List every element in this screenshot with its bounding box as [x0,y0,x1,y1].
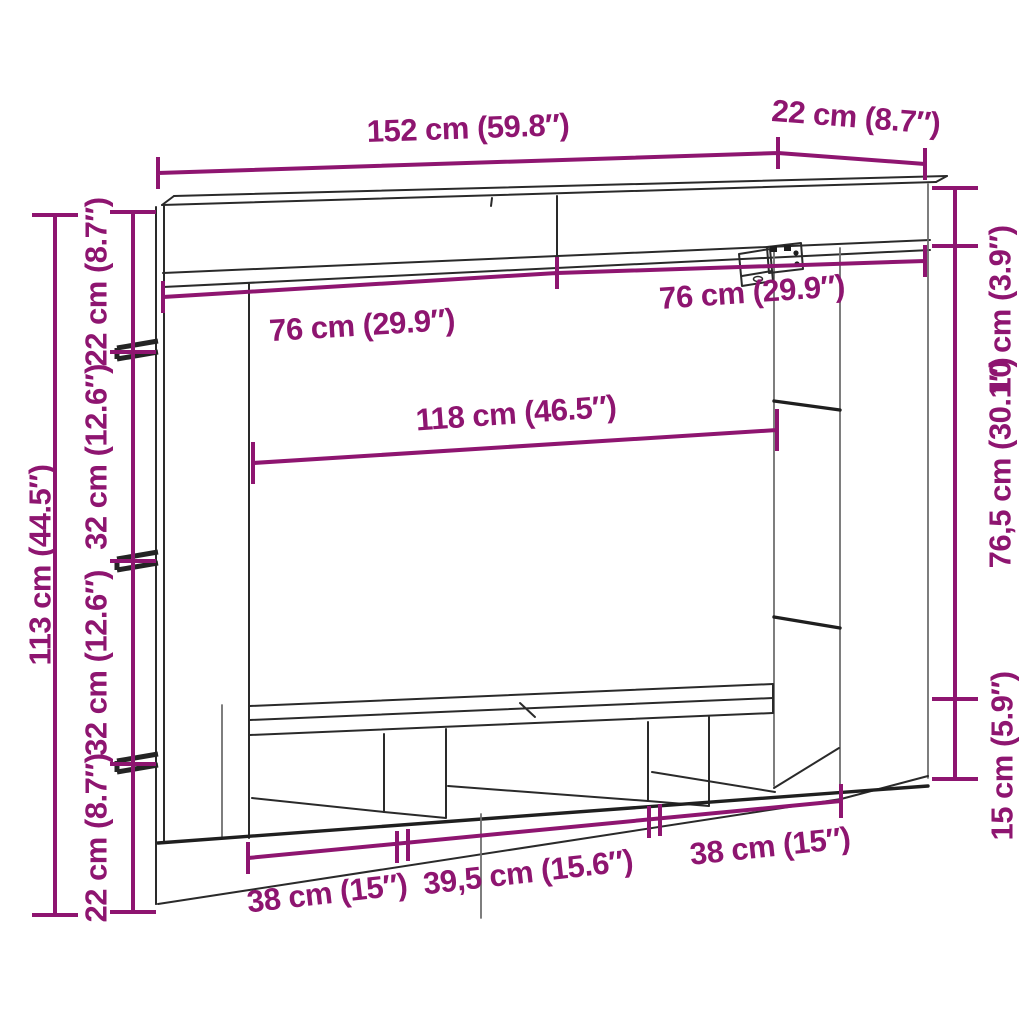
dim-label-top-right-width: 76 cm (29.9″) [658,268,846,316]
dim-label-depth-top: 22 cm (8.7″) [770,93,941,141]
shelf-tabs [117,341,158,772]
dimension-diagram: 152 cm (59.8″) 22 cm (8.7″) 10 cm (3.9″)… [0,0,1024,1024]
right-side-panel [841,184,928,799]
dim-label-left-seg-2: 32 cm (12.6″) [79,364,114,550]
dim-label-left-seg-3: 32 cm (12.6″) [79,570,114,756]
right-shelf-column [774,248,840,788]
dim-line-right-heights [932,188,978,779]
dim-label-left-total-height: 113 cm (44.5″) [23,465,58,666]
shelf-divider-right [648,717,709,806]
bracket-screw [793,250,798,255]
dim-label-bottom-seg-3: 38 cm (15″) [688,820,852,872]
compartment-floors [252,772,775,812]
bench-top-seam [520,703,535,717]
dim-line-depth-top [778,148,925,180]
dim-label-left-seg-4: 22 cm (8.7″) [79,753,114,922]
dim-label-right-mid-height: 76,5 cm (30.1″) [983,358,1018,569]
bench-shelf [250,684,773,735]
column-shelf-lower [774,617,840,628]
dim-label-width-total: 152 cm (59.8″) [366,107,570,149]
diagram-canvas: 152 cm (59.8″) 22 cm (8.7″) 10 cm (3.9″)… [0,0,1024,1024]
dim-label-middle-width: 118 cm (46.5″) [415,389,618,438]
dim-label-right-bottom-height: 15 cm (5.9″) [985,671,1020,840]
dim-label-bottom-seg-2: 39,5 cm (15.6″) [421,843,634,902]
dimension-labels: 152 cm (59.8″) 22 cm (8.7″) 10 cm (3.9″)… [23,93,1020,923]
shelf-divider-left [384,729,446,818]
dim-label-top-left-width: 76 cm (29.9″) [268,302,456,348]
dim-label-bottom-seg-1: 38 cm (15″) [245,866,409,919]
dim-label-left-seg-1: 22 cm (8.7″) [79,197,114,366]
bracket-screw-slot [784,245,791,251]
left-side-panel [156,205,249,904]
column-shelf-upper [774,401,840,410]
bracket-screw-slot [770,246,777,252]
dim-line-left-segments [110,212,156,912]
column-cubby-floor [774,748,839,788]
